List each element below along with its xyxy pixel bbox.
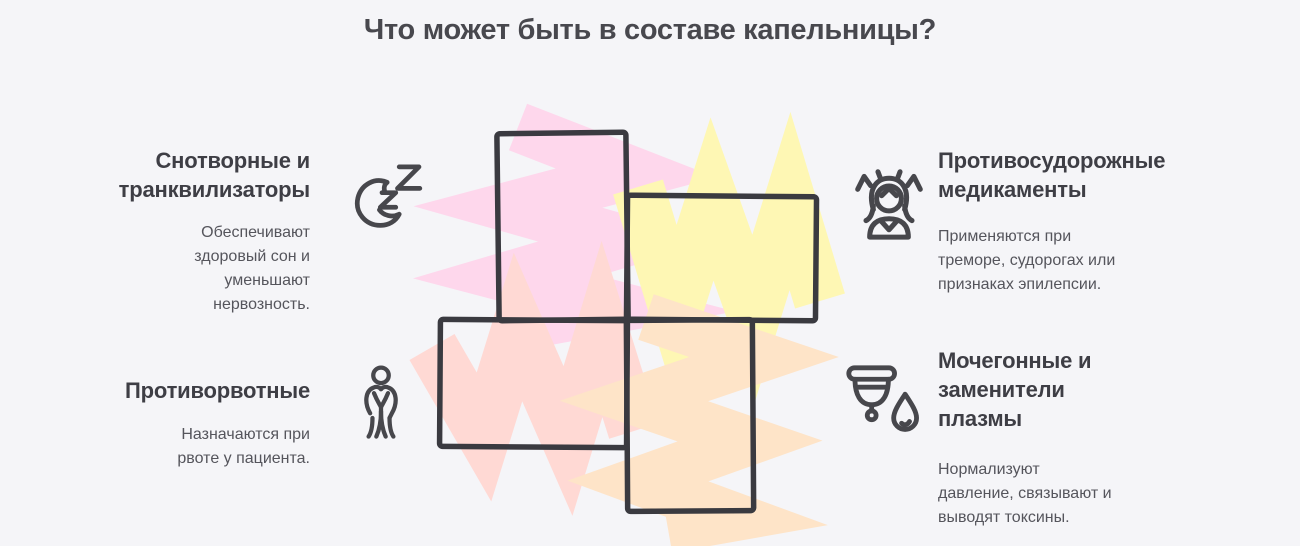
section-antiemetics-title: Противорвотные bbox=[60, 376, 310, 405]
section-diuretics-title: Мочегонные и заменители плазмы bbox=[938, 346, 1138, 433]
section-sedatives-description: Обеспечивают здоровый сон и уменьшают не… bbox=[170, 221, 310, 317]
infographic-canvas: Что может быть в составе капельницы? Сно… bbox=[0, 0, 1300, 546]
bottom-rect-scribble-fill bbox=[634, 317, 764, 529]
pinwheel-cross-figure bbox=[420, 115, 840, 525]
section-diuretics: Мочегонные и заменители плазмы Нормализу… bbox=[938, 346, 1138, 530]
section-antiemetics-description: Назначаются при рвоте у пациента. bbox=[150, 423, 310, 471]
section-anticonvulsants-description: Применяются при треморе, судорогах или п… bbox=[938, 225, 1116, 297]
section-anticonvulsants: Противосудорожные медикаменты Применяютс… bbox=[938, 146, 1228, 297]
section-anticonvulsants-title: Противосудорожные медикаменты bbox=[938, 146, 1228, 204]
section-antiemetics: Противорвотные Назначаются при рвоте у п… bbox=[60, 376, 310, 471]
diuretics-cup-drop-icon bbox=[840, 358, 928, 448]
section-diuretics-description: Нормализуют давление, связывают и выводя… bbox=[938, 458, 1116, 530]
right-rect-scribble-fill bbox=[638, 187, 820, 317]
section-sedatives: Снотворные и транквилизаторы Обеспечиваю… bbox=[60, 146, 310, 317]
nausea-person-icon bbox=[350, 364, 412, 444]
cross-drawing bbox=[420, 115, 840, 525]
moon-zzz-icon bbox=[338, 160, 426, 246]
section-sedatives-title: Снотворные и транквилизаторы bbox=[60, 146, 310, 204]
page-title: Что может быть в составе капельницы? bbox=[0, 14, 1300, 47]
stressed-person-icon bbox=[842, 158, 936, 250]
left-rect-scribble-fill bbox=[432, 327, 634, 441]
